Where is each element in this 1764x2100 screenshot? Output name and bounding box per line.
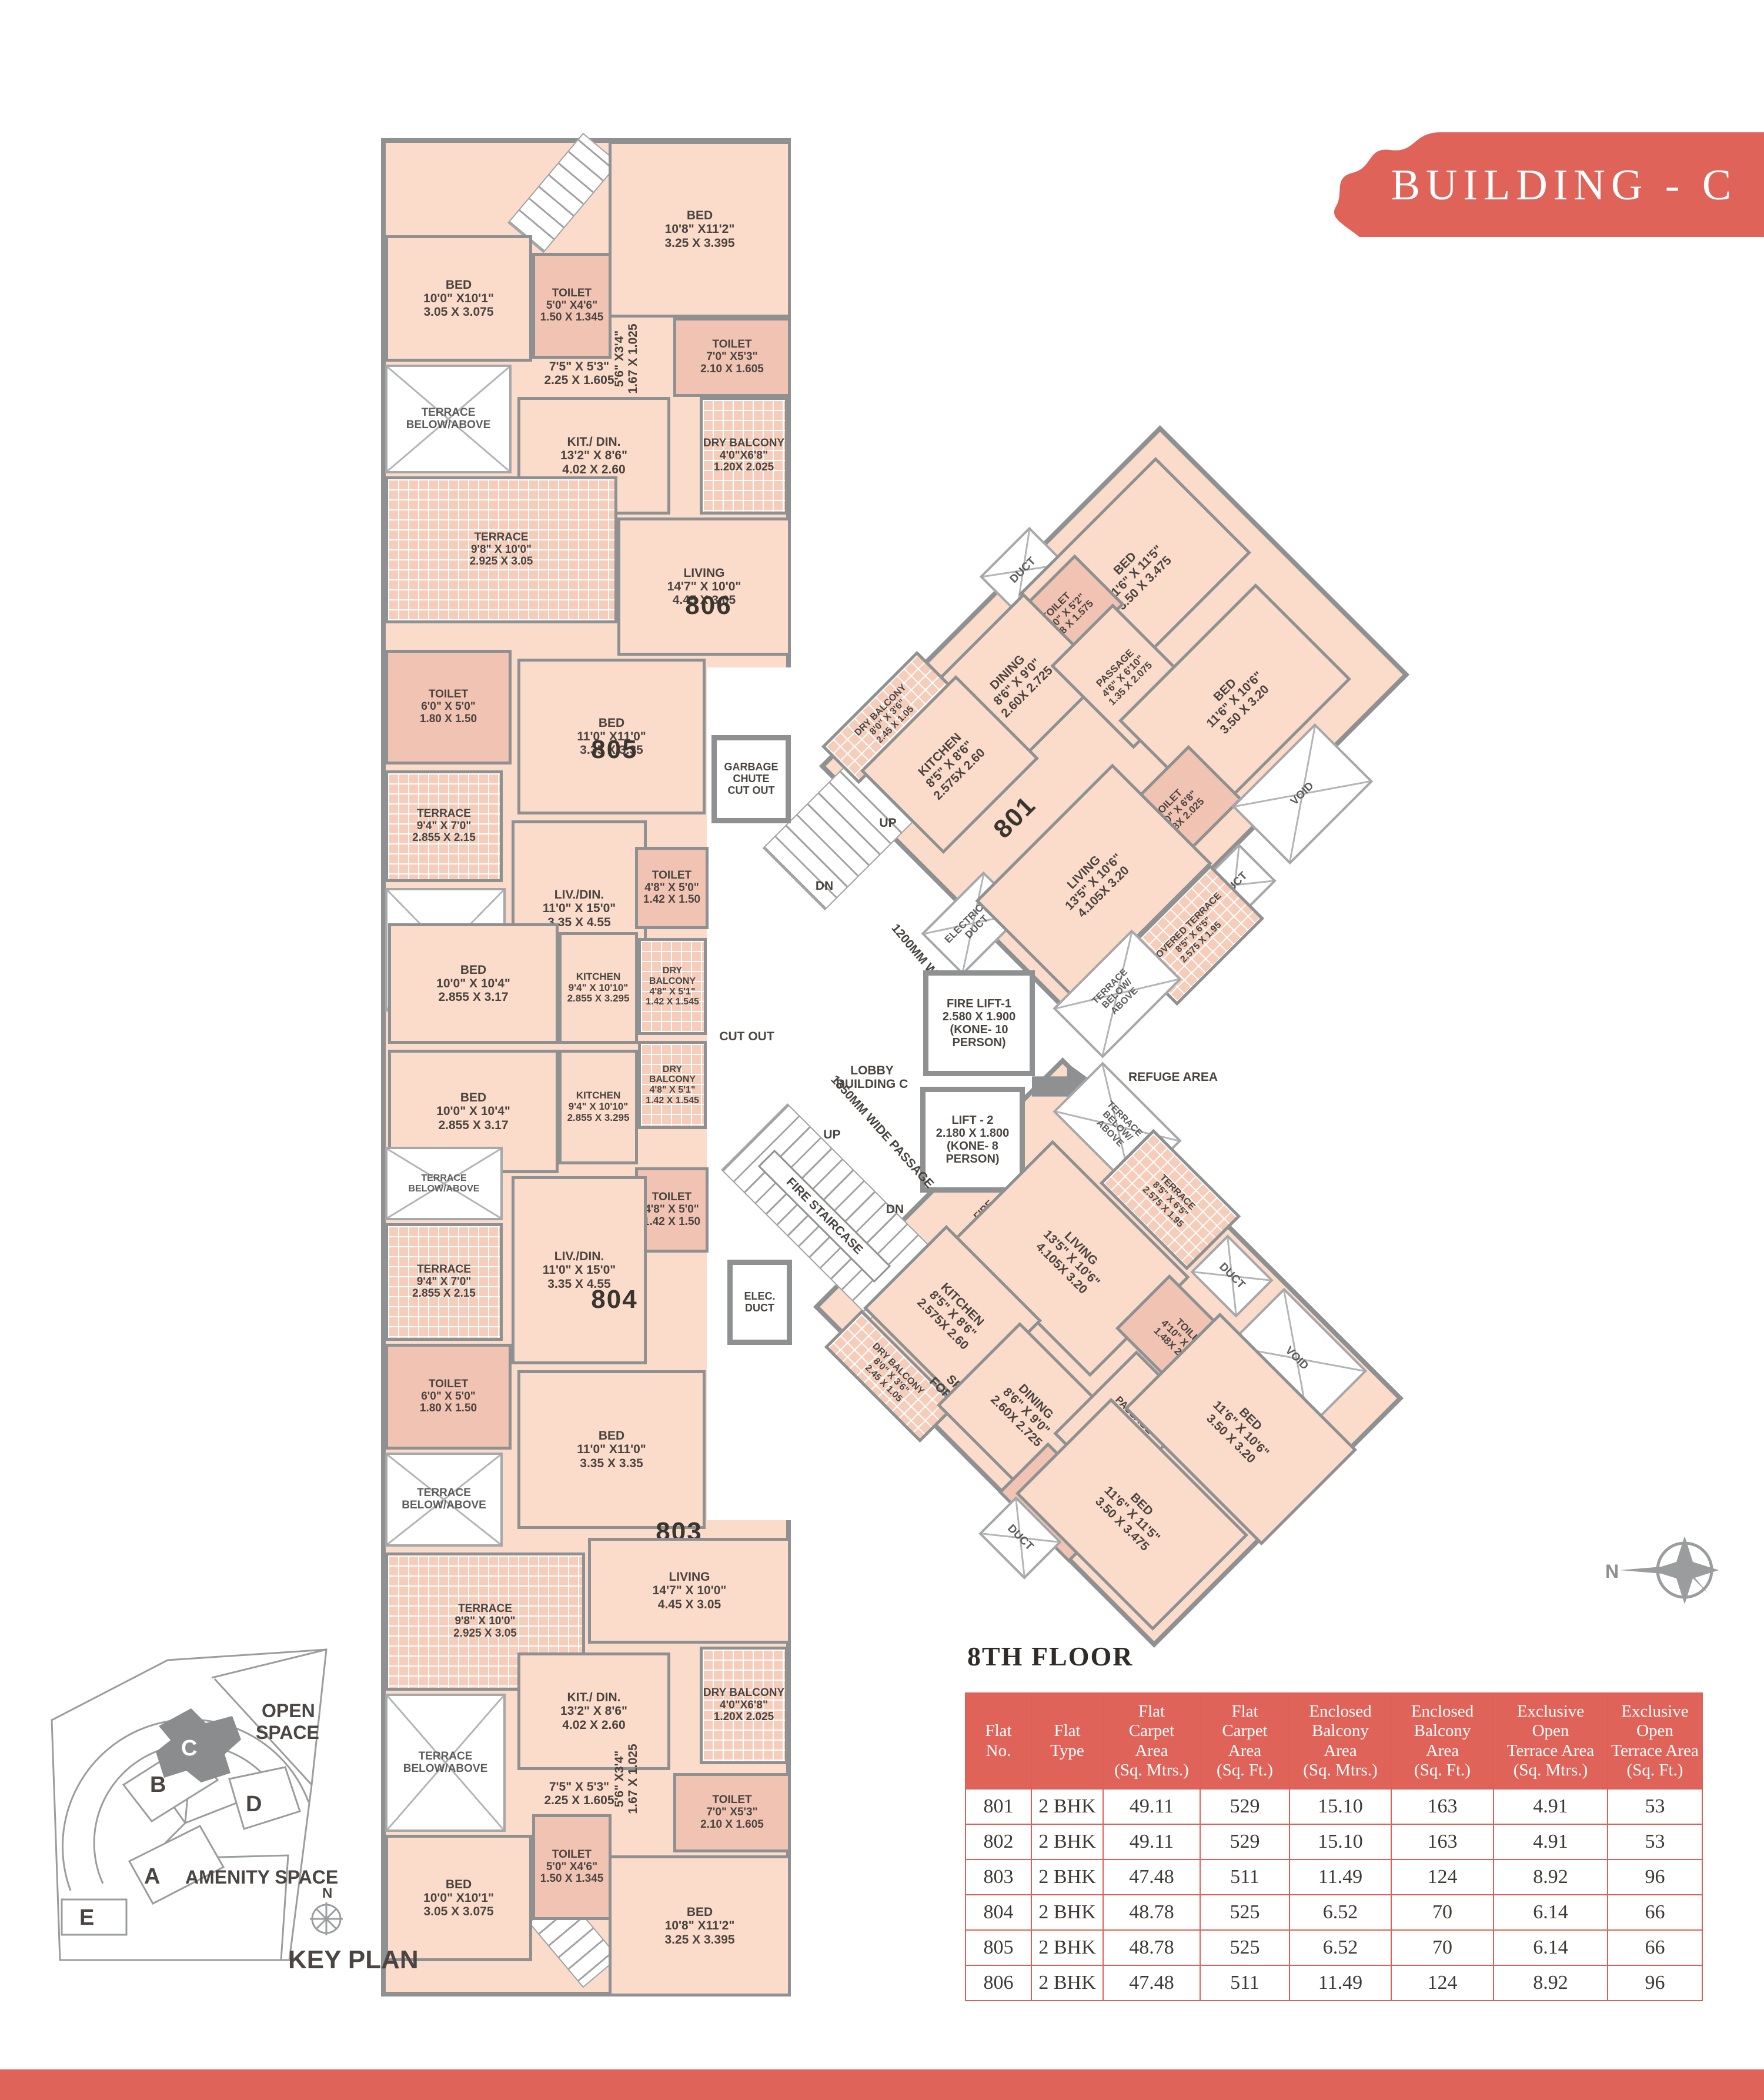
toilet-805-b-name: TOILET [652, 870, 691, 882]
toilet-806-a-d2: 1.50 X 1.345 [540, 312, 604, 324]
drybalc-804-d2: 1.42 X 1.545 [646, 1096, 699, 1106]
toilet-806-a-name: TOILET [552, 288, 592, 300]
toilet-805-b-d1: 4'8" X 5'0" [644, 882, 699, 894]
bed-806-a-d2: 3.25 X 3.395 [664, 236, 734, 250]
drybalc-804-name: DRY BALCONY [641, 1064, 704, 1085]
toilet-806-a: TOILET5'0" X4'6"1.50 X 1.345 [532, 253, 612, 359]
table-cell-801-5: 163 [1391, 1789, 1494, 1824]
table-cell-806-7: 96 [1608, 1965, 1702, 2001]
table-cell-804-6: 6.14 [1494, 1895, 1608, 1930]
bed-803-b-d1: 10'8" X11'2" [665, 1919, 735, 1932]
unit-806-name: 806 [685, 592, 731, 620]
table-cell-802-4: 15.10 [1289, 1824, 1391, 1859]
area-table-head: Flat No.Flat TypeFlat Carpet Area (Sq. M… [965, 1693, 1702, 1789]
toilet-805-a: TOILET6'0" X 5'0"1.80 X 1.50 [385, 650, 512, 764]
bed-804-b: BED11'0" X11'0"3.35 X 3.35 [517, 1370, 706, 1529]
table-cell-805-1: 2 BHK [1031, 1930, 1103, 1965]
table-cell-804-5: 70 [1391, 1895, 1494, 1930]
lbl-dn-2: DN [877, 1201, 913, 1218]
toilet-803-b-d1: 5'0" X4'6" [546, 1861, 597, 1874]
table-cell-804-0: 804 [965, 1895, 1031, 1930]
table-header-7: Exclusive Open Terrace Area (Sq. Ft.) [1608, 1693, 1702, 1789]
garbage-chute: GARBAGE CHUTE CUT OUT [711, 735, 791, 823]
lbl-dn-1: DN [807, 877, 842, 895]
elec-duct-name: ELEC. DUCT [744, 1291, 775, 1314]
key-plan-label-d: D [246, 1792, 262, 1817]
garbage-chute-name: GARBAGE CHUTE CUT OUT [724, 762, 778, 796]
table-cell-806-5: 124 [1391, 1965, 1494, 2001]
toilet-804-b: TOILET6'0" X 5'0"1.80 X 1.50 [385, 1344, 512, 1450]
toilet-804-a-name: TOILET [652, 1191, 691, 1204]
drybalc-803-d2: 1.20X 2.025 [714, 1711, 774, 1724]
table-cell-803-5: 124 [1391, 1859, 1494, 1895]
living-806: LIVING14'7" X 10'0"4.45 X 3.05 [617, 518, 791, 656]
toilet-804-a-d2: 1.42 X 1.50 [643, 1216, 700, 1228]
elec-duct: ELEC. DUCT [727, 1260, 792, 1345]
terrace-805-d2: 2.855 X 2.15 [412, 832, 476, 844]
kitchen-804-d2: 2.855 X 3.295 [567, 1113, 630, 1124]
living-806-name: LIVING [683, 566, 724, 580]
bed-804-b-d1: 11'0" X11'0" [577, 1443, 646, 1456]
table-cell-802-7: 53 [1608, 1824, 1702, 1859]
table-row-806: 8062 BHK47.4851111.491248.9296 [965, 1965, 1702, 2001]
bed-805: BED10'0" X 10'4"2.855 X 3.17 [388, 923, 559, 1044]
livdin-804: LIV./DIN.11'0" X 15'0"3.35 X 4.55 [512, 1176, 647, 1364]
key-plan-building-d [229, 1767, 300, 1829]
livdin-804-name: LIV./DIN. [554, 1250, 604, 1263]
bed-804-b-d2: 3.35 X 3.35 [580, 1457, 643, 1470]
table-cell-802-5: 163 [1391, 1824, 1494, 1859]
fire-lift-1-name: FIRE LIFT-1 [947, 997, 1011, 1010]
table-cell-801-7: 53 [1608, 1789, 1702, 1824]
living-803-d2: 4.45 X 3.05 [658, 1598, 721, 1611]
table-header-6: Exclusive Open Terrace Area (Sq. Mtrs.) [1494, 1693, 1608, 1789]
terrace-ba-1-name: TERRACE BELOW/ABOVE [406, 407, 491, 432]
lbl-cutout: CUT OUT [700, 1023, 794, 1050]
table-cell-802-3: 529 [1200, 1824, 1289, 1859]
kitchen-805: KITCHEN9'4" X 10'10"2.855 X 3.295 [559, 932, 638, 1044]
drybalc-805: DRY BALCONY4'8" X 5'1"1.42 X 1.545 [638, 938, 707, 1035]
lbl-up-1-name: UP [879, 816, 896, 830]
kitdin-803-d1: 13'2" X 8'6" [560, 1704, 627, 1718]
terrace-805-d1: 9'4" X 7'0" [417, 820, 472, 833]
unit-804-name: 804 [591, 1286, 637, 1314]
table-cell-801-3: 529 [1200, 1789, 1289, 1824]
drybalc-803: DRY BALCONY4'0"X6'8"1.20X 2.025 [700, 1647, 788, 1764]
terrace-ba-3-name: TERRACE BELOW/ABOVE [409, 1173, 480, 1194]
unit-804: 804 [588, 1285, 641, 1314]
drybalc-805-d1: 4'8" X 5'1" [650, 987, 696, 997]
terrace-806-name: TERRACE [475, 532, 529, 544]
table-cell-802-0: 802 [965, 1824, 1031, 1859]
key-plan-open-space: OPENSPACE [253, 1697, 345, 1743]
toilet-804-b-d1: 6'0" X 5'0" [421, 1391, 476, 1403]
table-cell-806-1: 2 BHK [1031, 1965, 1103, 2001]
kitdin-806-d1: 13'2" X 8'6" [560, 449, 627, 462]
table-cell-806-6: 8.92 [1494, 1965, 1608, 2001]
terrace-ba-4: TERRACE BELOW/ABOVE [385, 1453, 503, 1547]
terrace-804-d1: 9'4" X 7'0" [417, 1276, 472, 1288]
toilet-803-a-d2: 2.10 X 1.605 [700, 1819, 764, 1831]
livdin-805-d1: 11'0" X 15'0" [543, 902, 616, 915]
bed-806-a: BED10'8" X11'2"3.25 X 3.395 [609, 141, 791, 318]
drybalc-804-d1: 4'8" X 5'1" [650, 1085, 696, 1096]
fire-lift-1-d1: 2.580 X 1.900 [943, 1010, 1016, 1023]
kitdin-803-name: KIT./ DIN. [567, 1691, 620, 1704]
table-cell-805-5: 70 [1391, 1930, 1494, 1965]
toilet-805-a-name: TOILET [429, 689, 468, 701]
table-cell-802-2: 49.11 [1103, 1824, 1200, 1859]
toilet-805-b-d2: 1.42 X 1.50 [643, 894, 700, 906]
terrace-804-d2: 2.855 X 2.15 [412, 1288, 476, 1300]
lift-2-d1: 2.180 X 1.800 [936, 1127, 1010, 1140]
lbl-803-niche-name: 5'6" X3'4" [613, 1751, 626, 1807]
lbl-806-pass-name: 7'5" X 5'3" [549, 360, 609, 373]
terrace-806-d1: 9'8" X 10'0" [471, 544, 532, 556]
bed-804-d1: 10'0" X 10'4" [436, 1104, 510, 1118]
kitdin-806-d2: 4.02 X 2.60 [562, 463, 625, 476]
table-cell-801-0: 801 [965, 1789, 1031, 1824]
lbl-dn-2-name: DN [886, 1203, 904, 1216]
bed-806-b-name: BED [446, 278, 472, 292]
drybalc-805-name: DRY BALCONY [641, 966, 704, 986]
terrace-803-d1: 9'8" X 10'0" [455, 1615, 515, 1628]
bed-803-a-name: BED [446, 1878, 472, 1891]
kitchen-804: KITCHEN9'4" X 10'10"2.855 X 3.295 [559, 1050, 638, 1164]
area-table-body: 8012 BHK49.1152915.101634.91538022 BHK49… [965, 1789, 1702, 2001]
key-plan: A B C D E OPENSPACE AMENITY SPACE N KEY … [35, 1608, 423, 1985]
table-cell-805-3: 525 [1200, 1930, 1289, 1965]
bottom-accent-strip [0, 2069, 1764, 2100]
unit-805: 805 [588, 735, 641, 764]
lbl-806-niche-d1: 1.67 X 1.025 [626, 323, 640, 393]
kitchen-805-d1: 9'4" X 10'10" [569, 983, 629, 994]
drybalc-806-d1: 4'0"X6'8" [720, 450, 768, 462]
drybalc-805-d2: 1.42 X 1.545 [646, 997, 699, 1007]
table-cell-806-4: 11.49 [1289, 1965, 1391, 2001]
livdin-804-d1: 11'0" X 15'0" [543, 1263, 616, 1277]
void-802-name: VOID [1282, 1344, 1311, 1373]
key-plan-building-c [156, 1708, 241, 1782]
floor-heading: 8TH FLOOR [967, 1641, 1134, 1672]
kitdin-806-name: KIT./ DIN. [567, 435, 620, 449]
terrace-805: TERRACE9'4" X 7'0"2.855 X 2.15 [385, 770, 503, 882]
table-cell-803-7: 96 [1608, 1859, 1702, 1895]
kitdin-803: KIT./ DIN.13'2" X 8'6"4.02 X 2.60 [517, 1652, 670, 1770]
terrace-803-d2: 2.925 X 3.05 [453, 1628, 517, 1640]
table-cell-806-3: 511 [1200, 1965, 1289, 2001]
table-header-4: Enclosed Balcony Area (Sq. Mtrs.) [1289, 1693, 1391, 1789]
toilet-803-b: TOILET5'0" X4'6"1.50 X 1.345 [532, 1814, 612, 1920]
table-cell-804-2: 48.78 [1103, 1895, 1200, 1930]
table-header-0: Flat No. [965, 1693, 1031, 1789]
table-cell-803-2: 47.48 [1103, 1859, 1200, 1895]
bed-806-b-d2: 3.05 X 3.075 [423, 305, 493, 319]
bed-806-c-name: BED [599, 716, 624, 730]
table-cell-803-4: 11.49 [1289, 1859, 1391, 1895]
table-row-802: 8022 BHK49.1152915.101634.9153 [965, 1824, 1702, 1859]
page: BED10'8" X11'2"3.25 X 3.395BED10'0" X10'… [0, 0, 1764, 2100]
bed-803-b: BED10'8" X11'2"3.25 X 3.395 [609, 1855, 791, 1996]
north-compass: N [1588, 1514, 1746, 1626]
table-cell-804-7: 66 [1608, 1895, 1702, 1930]
lift-2-name: LIFT - 2 [951, 1114, 993, 1127]
toilet-805-a-d1: 6'0" X 5'0" [421, 701, 476, 713]
drybalc-806-name: DRY BALCONY [703, 438, 784, 450]
lbl-803-pass-name: 7'5" X 5'3" [549, 1780, 609, 1794]
lift-2-d2: (KONE- 8 PERSON) [926, 1140, 1020, 1166]
terrace-ba-1: TERRACE BELOW/ABOVE [385, 365, 512, 473]
toilet-804-b-name: TOILET [429, 1378, 468, 1391]
table-header-2: Flat Carpet Area (Sq. Mtrs.) [1103, 1693, 1200, 1789]
table-header-1: Flat Type [1031, 1693, 1103, 1789]
drybalc-806: DRY BALCONY4'0"X6'8"1.20X 2.025 [700, 397, 788, 515]
table-cell-805-0: 805 [965, 1930, 1031, 1965]
table-cell-806-2: 47.48 [1103, 1965, 1200, 2001]
lbl-dn-1-name: DN [816, 879, 833, 893]
toilet-806-a-d1: 5'0" X4'6" [546, 300, 597, 312]
table-cell-806-0: 806 [965, 1965, 1031, 2001]
table-cell-804-3: 525 [1200, 1895, 1289, 1930]
table-cell-801-2: 49.11 [1103, 1789, 1200, 1824]
table-row-805: 8052 BHK48.785256.52706.1466 [965, 1930, 1702, 1965]
livdin-805-name: LIV./DIN. [554, 888, 604, 902]
bed-804-name: BED [460, 1091, 486, 1104]
key-plan-building-a [129, 1826, 223, 1904]
toilet-803-a-name: TOILET [712, 1794, 751, 1807]
table-cell-801-4: 15.10 [1289, 1789, 1391, 1824]
key-plan-label-b: B [150, 1772, 166, 1797]
table-cell-802-6: 4.91 [1494, 1824, 1608, 1859]
terrace-803-name: TERRACE [458, 1603, 512, 1615]
toilet-803-a: TOILET7'0" X5'3"2.10 X 1.605 [673, 1773, 791, 1852]
lbl-806-niche-name: 5'6" X3'4" [613, 330, 626, 387]
table-cell-805-6: 6.14 [1494, 1930, 1608, 1965]
area-table: Flat No.Flat TypeFlat Carpet Area (Sq. M… [965, 1692, 1703, 2001]
table-cell-802-1: 2 BHK [1031, 1824, 1103, 1859]
key-plan-label-a: A [144, 1864, 160, 1889]
lbl-803-niche: 5'6" X3'4"1.67 X 1.025 [612, 1735, 641, 1823]
toilet-805-b: TOILET4'8" X 5'0"1.42 X 1.50 [635, 847, 709, 929]
table-cell-803-6: 8.92 [1494, 1859, 1608, 1895]
toilet-803-b-d2: 1.50 X 1.345 [540, 1873, 604, 1885]
table-cell-803-1: 2 BHK [1031, 1859, 1103, 1895]
kitchen-805-d2: 2.855 X 3.295 [567, 993, 630, 1004]
bed-803-b-d2: 3.25 X 3.395 [664, 1933, 734, 1947]
toilet-804-a-d1: 4'8" X 5'0" [644, 1204, 699, 1216]
table-cell-801-1: 2 BHK [1031, 1789, 1103, 1824]
terrace-804-name: TERRACE [417, 1264, 471, 1276]
fire-lift-1-d2: (KONE- 10 PERSON) [928, 1023, 1030, 1049]
living-803-name: LIVING [669, 1570, 710, 1584]
table-header-3: Flat Carpet Area (Sq. Ft.) [1200, 1693, 1289, 1789]
bed-806-a-d1: 10'8" X11'2" [665, 222, 735, 236]
table-cell-804-4: 6.52 [1289, 1895, 1391, 1930]
living-803: LIVING14'7" X 10'0"4.45 X 3.05 [588, 1538, 791, 1644]
terrace-ba-4-name: TERRACE BELOW/ABOVE [402, 1487, 486, 1512]
table-row-804: 8042 BHK48.785256.52706.1466 [965, 1895, 1702, 1930]
lbl-up-2: UP [814, 1126, 850, 1144]
terrace-ba-801-name: TERRACE BELOW/ ABOVE [1090, 967, 1144, 1021]
bed-806-a-name: BED [687, 209, 713, 222]
terrace-ba-802-name: TERRACE BELOW/ ABOVE [1090, 1099, 1144, 1153]
unit-805-name: 805 [591, 736, 637, 764]
table-row-801: 8012 BHK49.1152915.101634.9153 [965, 1789, 1702, 1824]
kitchen-804-name: KITCHEN [576, 1090, 621, 1101]
key-plan-north-label: N [322, 1885, 332, 1901]
drybalc-804: DRY BALCONY4'8" X 5'1"1.42 X 1.545 [638, 1041, 707, 1129]
void-801-name: VOID [1288, 780, 1317, 808]
drybalc-803-name: DRY BALCONY [703, 1687, 784, 1700]
lbl-cutout-name: CUT OUT [719, 1030, 774, 1043]
terrace-806: TERRACE9'8" X 10'0"2.925 X 3.05 [385, 476, 617, 623]
lbl-806-pass-d1: 2.25 X 1.605 [544, 373, 614, 387]
table-cell-805-4: 6.52 [1289, 1930, 1391, 1965]
lbl-806-niche: 5'6" X3'4"1.67 X 1.025 [612, 315, 641, 403]
toilet-806-b: TOILET7'0" X5'3"2.10 X 1.605 [673, 318, 791, 397]
unit-806: 806 [682, 591, 735, 620]
north-label: N [1605, 1561, 1619, 1582]
drybalc-806-d2: 1.20X 2.025 [714, 462, 774, 474]
lbl-refuge-name: REFUGE AREA [1128, 1070, 1218, 1084]
bed-805-d2: 2.855 X 3.17 [438, 990, 508, 1004]
key-plan-amenity-space: AMENITY SPACE [185, 1867, 338, 1888]
key-plan-label-c: C [181, 1736, 197, 1761]
table-cell-801-6: 4.91 [1494, 1789, 1608, 1824]
bed-804-b-name: BED [599, 1429, 624, 1443]
table-cell-803-0: 803 [965, 1859, 1031, 1895]
kitchen-804-d1: 9'4" X 10'10" [569, 1101, 629, 1113]
toilet-805-a-d2: 1.80 X 1.50 [420, 713, 477, 726]
fire-lift-1: FIRE LIFT-12.580 X 1.900(KONE- 10 PERSON… [923, 970, 1035, 1076]
bed-803-b-name: BED [687, 1905, 713, 1919]
table-row-803: 8032 BHK47.4851111.491248.9296 [965, 1859, 1702, 1895]
living-803-d1: 14'7" X 10'0" [653, 1584, 727, 1597]
toilet-804-b-d2: 1.80 X 1.50 [420, 1403, 477, 1415]
banner-title: BUILDING - C [1388, 161, 1740, 211]
table-cell-803-3: 511 [1200, 1859, 1289, 1895]
terrace-ba-3: TERRACE BELOW/ABOVE [385, 1147, 503, 1220]
key-plan-title: KEY PLAN [288, 1945, 419, 1974]
lbl-up-1: UP [870, 814, 906, 832]
bed-804-d2: 2.855 X 3.17 [438, 1119, 508, 1132]
table-cell-805-2: 48.78 [1103, 1930, 1200, 1965]
bed-803-a-d2: 3.05 X 3.075 [423, 1905, 493, 1918]
duct-802-b-name: DUCT [1005, 1523, 1035, 1553]
toilet-803-b-name: TOILET [552, 1849, 592, 1861]
toilet-803-a-d1: 7'0" X5'3" [706, 1807, 757, 1819]
lbl-up-2-name: UP [823, 1128, 840, 1141]
bed-803-a-d1: 10'0" X10'1" [423, 1891, 494, 1905]
drybalc-803-d1: 4'0"X6'8" [720, 1700, 768, 1712]
bed-806-b-d1: 10'0" X10'1" [423, 292, 494, 305]
terrace-804: TERRACE9'4" X 7'0"2.855 X 2.15 [385, 1223, 503, 1341]
lbl-803-niche-d1: 1.67 X 1.025 [626, 1744, 640, 1814]
toilet-806-b-d1: 7'0" X5'3" [706, 351, 757, 363]
kitchen-805-name: KITCHEN [576, 971, 621, 983]
key-plan-label-e: E [79, 1905, 94, 1930]
bed-805-d1: 10'0" X 10'4" [436, 977, 510, 990]
duct-802-a-name: DUCT [1217, 1261, 1247, 1291]
building-banner: BUILDING - C [1247, 103, 1764, 241]
table-cell-805-7: 66 [1608, 1930, 1702, 1965]
terrace-806-d2: 2.925 X 3.05 [470, 556, 533, 568]
toilet-806-b-d2: 2.10 X 1.605 [700, 363, 764, 376]
toilet-806-b-name: TOILET [712, 339, 751, 351]
bed-805-name: BED [460, 963, 486, 977]
bed-806-b: BED10'0" X10'1"3.05 X 3.075 [385, 235, 532, 362]
lbl-803-pass-d1: 2.25 X 1.605 [544, 1794, 614, 1807]
terrace-805-name: TERRACE [417, 808, 471, 820]
table-cell-804-1: 2 BHK [1031, 1895, 1103, 1930]
table-header-5: Enclosed Balcony Area (Sq. Ft.) [1391, 1693, 1494, 1789]
kitdin-803-d2: 4.02 X 2.60 [562, 1718, 625, 1732]
